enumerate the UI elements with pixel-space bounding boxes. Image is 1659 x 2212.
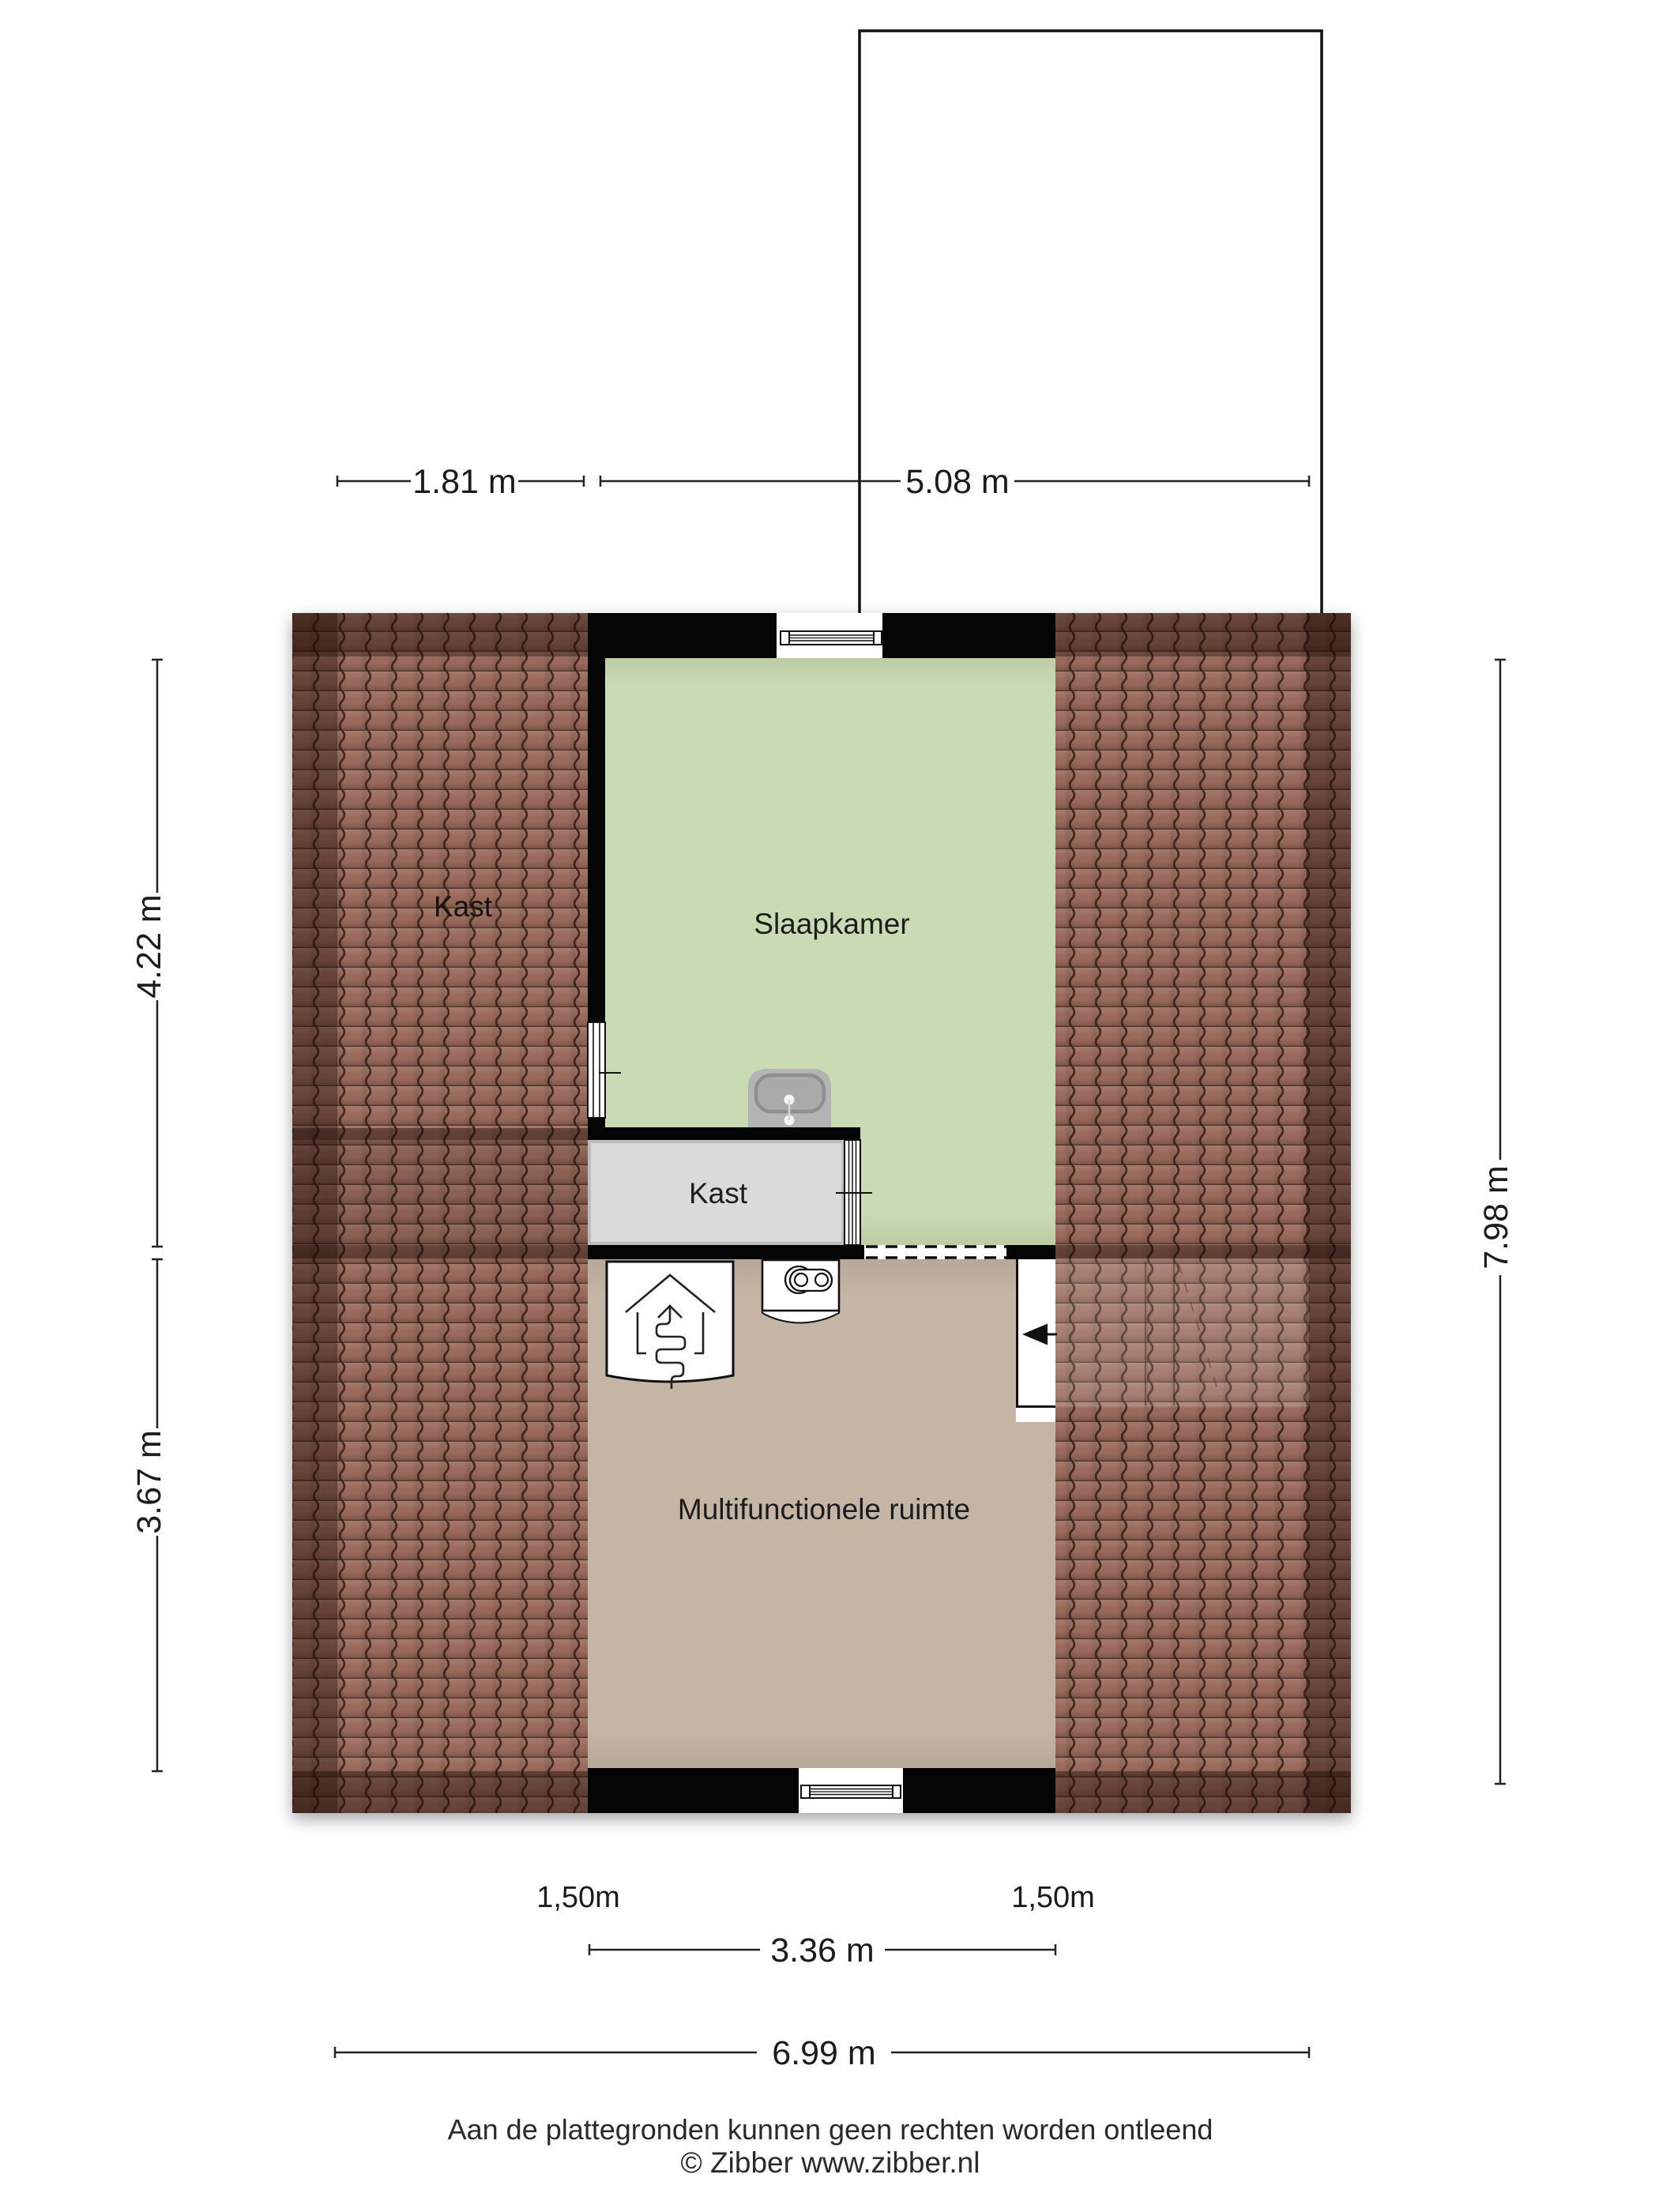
- svg-text:7.98 m: 7.98 m: [1477, 1165, 1515, 1269]
- svg-text:1,50m: 1,50m: [536, 1881, 620, 1914]
- svg-text:Multifunctionele ruimte: Multifunctionele ruimte: [678, 1493, 970, 1525]
- svg-text:3.67 m: 3.67 m: [130, 1430, 168, 1533]
- svg-text:3.36 m: 3.36 m: [770, 1932, 874, 1969]
- svg-text:5.08 m: 5.08 m: [905, 463, 1009, 501]
- svg-text:© Zibber www.zibber.nl: © Zibber www.zibber.nl: [681, 2146, 980, 2179]
- svg-text:4.22 m: 4.22 m: [130, 894, 168, 998]
- svg-text:1.81 m: 1.81 m: [412, 463, 516, 501]
- svg-text:Kast: Kast: [689, 1177, 748, 1209]
- svg-text:6.99 m: 6.99 m: [772, 2034, 875, 2072]
- svg-text:1,50m: 1,50m: [1011, 1881, 1095, 1914]
- svg-text:Slaapkamer: Slaapkamer: [754, 908, 909, 940]
- svg-text:Aan de plattegronden kunnen ge: Aan de plattegronden kunnen geen rechten…: [448, 2113, 1213, 2146]
- svg-text:Kast: Kast: [434, 890, 493, 923]
